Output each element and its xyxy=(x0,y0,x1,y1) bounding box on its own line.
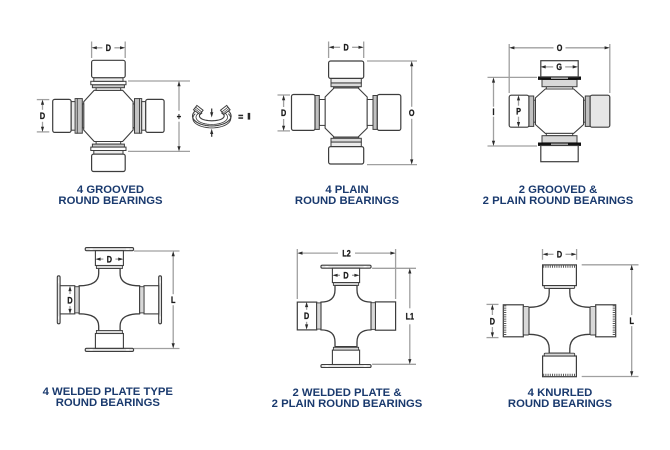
svg-text:D: D xyxy=(107,255,112,265)
svg-text:2 PLAIN ROUND BEARINGS: 2 PLAIN ROUND BEARINGS xyxy=(483,195,634,207)
svg-text:G: G xyxy=(556,62,562,72)
svg-text:D: D xyxy=(304,311,309,321)
svg-text:L2: L2 xyxy=(342,249,351,259)
svg-text:D: D xyxy=(40,111,45,121)
svg-text:+: + xyxy=(177,111,181,122)
svg-text:I: I xyxy=(492,107,494,117)
svg-text:D: D xyxy=(281,108,286,118)
svg-text:2 PLAIN ROUND BEARINGS: 2 PLAIN ROUND BEARINGS xyxy=(272,398,423,410)
svg-text:D: D xyxy=(490,317,495,327)
svg-text:D: D xyxy=(344,43,349,53)
svg-text:D: D xyxy=(557,250,562,260)
svg-text:ROUND BEARINGS: ROUND BEARINGS xyxy=(508,398,613,410)
svg-text:P: P xyxy=(516,107,521,117)
svg-text:D: D xyxy=(106,43,111,53)
svg-text:ROUND BEARINGS: ROUND BEARINGS xyxy=(58,195,163,207)
svg-text:D: D xyxy=(67,296,72,306)
svg-text:O: O xyxy=(409,108,415,118)
svg-text:L: L xyxy=(171,295,175,305)
svg-text:L1: L1 xyxy=(406,312,415,322)
svg-text:L: L xyxy=(630,316,634,326)
svg-text:ROUND BEARINGS: ROUND BEARINGS xyxy=(56,397,161,409)
svg-text:ROUND BEARINGS: ROUND BEARINGS xyxy=(295,195,400,207)
svg-text:O: O xyxy=(557,43,563,53)
svg-text:D: D xyxy=(343,271,348,281)
